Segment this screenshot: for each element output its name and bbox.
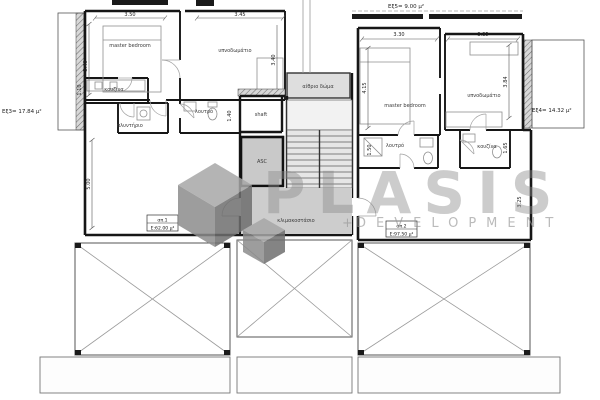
dim-apt2-kitchen-height: 1.65 [503,142,509,153]
room-label-apt2-kitchen: κουζίνα [477,143,497,150]
dim-apt1-bedroom-width: 3.45 [234,12,245,18]
floorplan-drawing: 3.50 3.45 3.40 3.40 1.10 1.40 5.00 maste… [0,0,600,400]
site-strip-left [40,357,230,393]
apt1-unit-tag: απ.1 Ε:62.00 μ² [147,215,178,231]
dim-apt1-bedroom-height: 3.40 [271,54,277,65]
apt2-unit-area: Ε:97.50 μ² [390,231,414,237]
dim-apt2-bath-height: 1.50 [367,144,373,155]
annotation-ext-top: Εξ5= 9.00 μ² [388,3,424,10]
room-label-apt1-bath: λουτρό [195,108,213,115]
site-strip-right [358,357,560,393]
dim-apt2-master-height: 4.15 [362,82,368,93]
dim-apt1-kitchen-height: 1.10 [77,84,83,95]
site-strip-center [237,357,352,393]
site-strips [40,357,560,393]
room-label-apt2-bedroom: υπνοδωμάτιο [467,92,500,99]
room-label-apt1-kitchen: κουζίνα [104,86,124,93]
apt1-unit-number: απ.1 [157,217,167,223]
apt2-balcony-wall-hatch [524,40,532,128]
dim-apt1-living-height: 5.00 [86,178,92,189]
dim-apt1-master-width: 3.50 [124,12,135,18]
room-label-apt1-laundry: πλυντήριο [117,122,143,129]
room-label-apt2-bath: λουτρό [386,142,404,149]
room-label-atrium: αίθριο δώμα [302,83,334,90]
room-label-apt2-master: master bedroom [384,103,426,109]
annotation-ext-right: Εξ4= 14.32 μ² [532,107,572,114]
dim-apt2-bedroom-width: 3.35 [477,32,488,38]
dim-apt2-master-width: 3.30 [393,32,404,38]
dim-apt1-master-height: 3.40 [83,60,89,71]
apt1-unit-area: Ε:62.00 μ² [151,225,175,231]
stair-landing [287,100,352,130]
brand-plus-icon: + [342,216,353,231]
dim-apt1-bath-height: 1.40 [227,110,233,121]
room-label-apt1-master: master bedroom [109,43,151,49]
annotation-ext-left: Εξ3= 17.84 μ² [2,108,42,115]
room-label-apt1-bedroom: υπνοδωμάτιο [218,47,251,54]
brand-tagline: DEVELOPMENT [356,216,563,231]
room-label-shaft: shaft [255,112,268,118]
floorplan-svg: 3.50 3.45 3.40 3.40 1.10 1.40 5.00 maste… [0,0,600,400]
dim-apt2-bedroom-height: 3.84 [503,76,509,87]
